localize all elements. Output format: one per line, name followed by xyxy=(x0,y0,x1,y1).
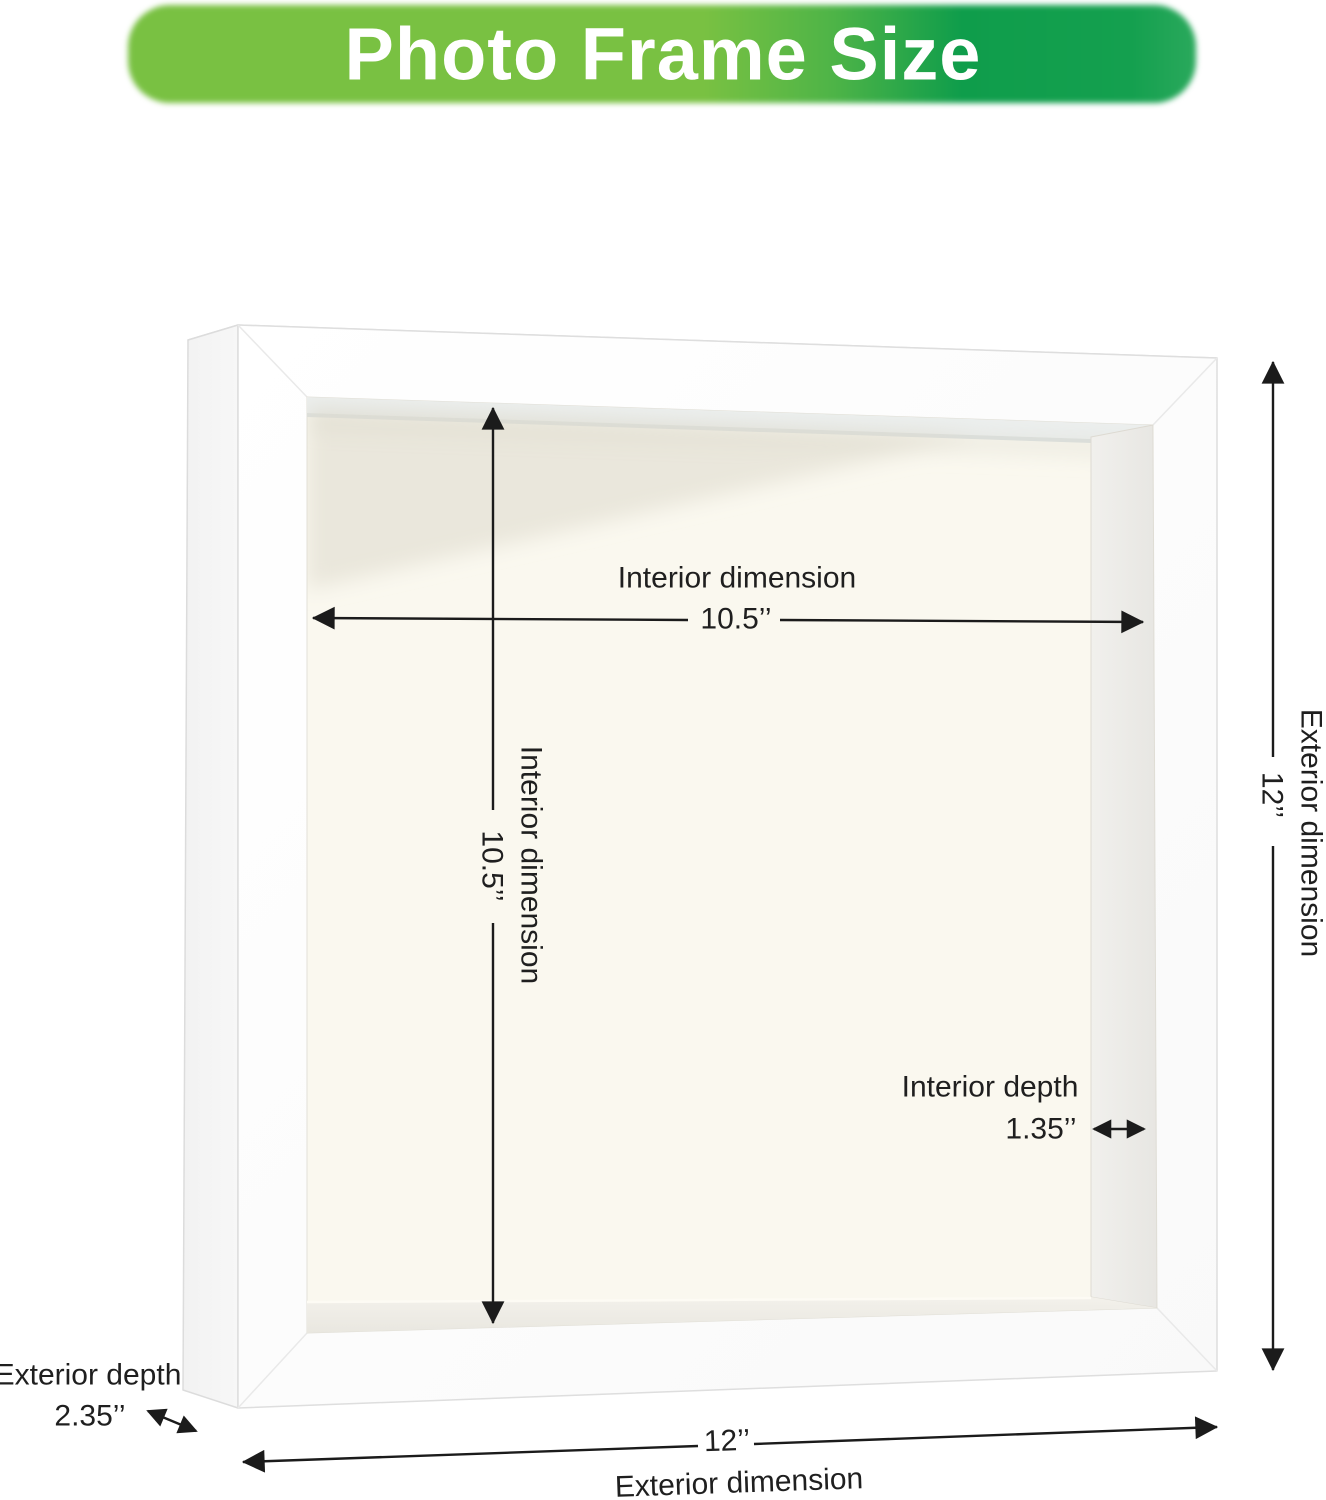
interior-right-wall xyxy=(1091,425,1157,1308)
interior-depth-label: Interior depth xyxy=(902,1071,1079,1104)
exterior-height-value: 12’’ xyxy=(1256,772,1289,818)
exterior-width-line-left xyxy=(243,1446,698,1462)
exterior-depth-value: 2.35’’ xyxy=(54,1400,125,1433)
exterior-depth-arrow xyxy=(148,1411,196,1431)
frame-illustration xyxy=(0,0,1326,1500)
interior-depth-value: 1.35’’ xyxy=(1005,1113,1076,1146)
frame-side-face xyxy=(183,325,238,1408)
interior-height-value: 10.5’’ xyxy=(476,830,509,901)
exterior-width-value: 12’’ xyxy=(703,1424,750,1459)
exterior-depth-label: Exterior depth xyxy=(0,1359,181,1392)
photo-frame-size-diagram: Photo Frame Size xyxy=(0,0,1326,1500)
interior-height-label: Interior dimension xyxy=(515,746,548,984)
exterior-height-label: Exterior dimension xyxy=(1295,709,1326,957)
exterior-width-line-right xyxy=(754,1427,1217,1444)
interior-width-label: Interior dimension xyxy=(618,562,856,595)
interior-width-value: 10.5’’ xyxy=(700,603,771,636)
